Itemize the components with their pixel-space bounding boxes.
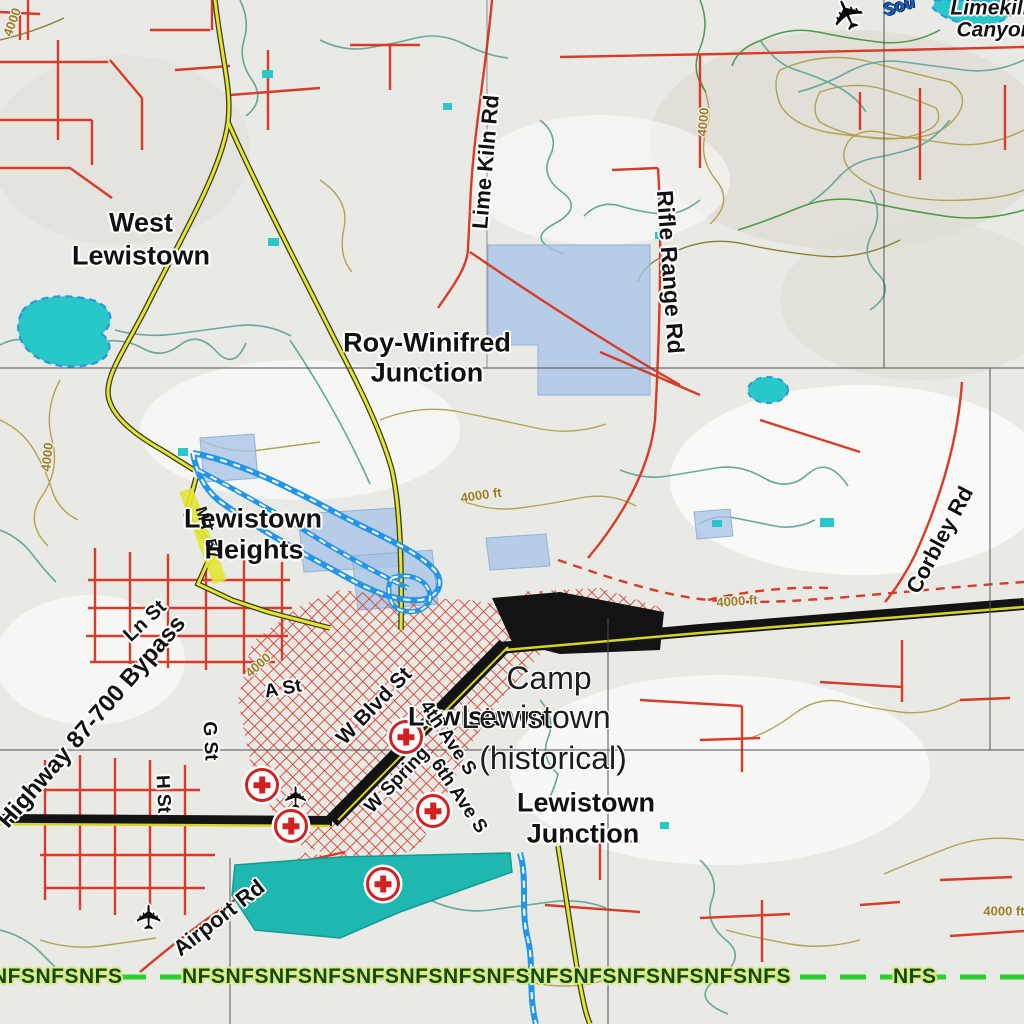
- elevation-label: 4000 ft: [716, 593, 758, 609]
- nfs-boundary-text: NFS: [893, 966, 937, 987]
- airport-icon[interactable]: ✈: [130, 903, 170, 932]
- label-limekiln-canyon: Canyon: [956, 20, 1024, 41]
- label-lewistown-junction: Lewistown: [517, 790, 655, 817]
- label-roy-winifred-junction: Junction: [371, 360, 484, 387]
- medical-cross-icon[interactable]: [366, 867, 400, 901]
- map-terrain-layer: [0, 0, 1024, 1024]
- nfs-boundary-text: NFSNFSNFSNFSNFSNFSNFSNFSNFSNFSNFSNFSNFSN…: [182, 966, 791, 987]
- label-camp-lewistown-historical: Camp: [506, 662, 591, 694]
- label-west-lewistown: West: [109, 210, 173, 237]
- cross-bar: [380, 876, 386, 893]
- elevation-label: 4000 ft: [983, 905, 1024, 918]
- label-limekiln-canyon: Limekiln: [950, 0, 1024, 19]
- cross-bar: [259, 777, 265, 794]
- medical-cross-icon[interactable]: [245, 768, 279, 802]
- medical-cross-icon[interactable]: [416, 794, 450, 828]
- cross-bar: [288, 818, 294, 835]
- cross-bar: [430, 803, 436, 820]
- topo-map-canvas[interactable]: ✈ ✈ ✈ West Lewistown Roy-Winifred Juncti…: [0, 0, 1024, 1024]
- elevation-label: 4000: [39, 442, 55, 472]
- nfs-boundary-text: NFSNFSNFS: [0, 966, 123, 987]
- label-west-lewistown: Lewistown: [72, 243, 210, 270]
- elevation-label: 4000: [695, 107, 710, 137]
- medical-cross-icon[interactable]: [274, 809, 308, 843]
- label-g-st: G St: [199, 721, 220, 761]
- label-roy-winifred-junction: Roy-Winifred: [343, 330, 511, 357]
- label-h-st: H St: [153, 775, 174, 814]
- airport-icon[interactable]: ✈: [280, 784, 315, 809]
- label-lewistown-junction: Junction: [527, 821, 640, 848]
- label-camp-lewistown-historical: Lewistown: [461, 701, 610, 733]
- label-camp-lewistown-historical: (historical): [479, 742, 627, 774]
